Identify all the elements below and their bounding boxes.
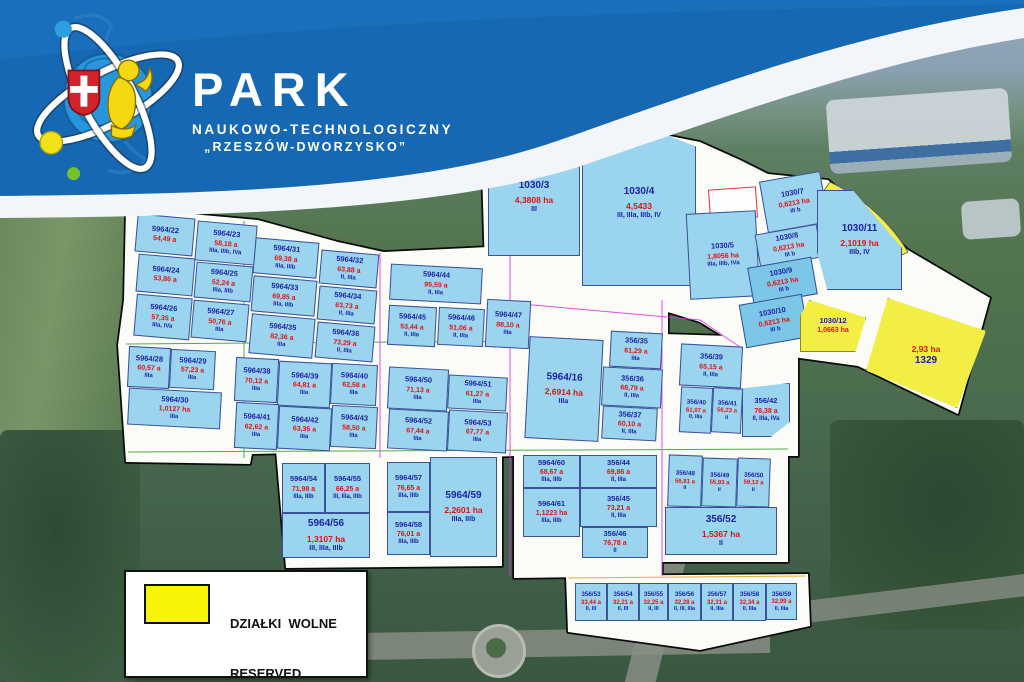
parcel-classes: IIIa <box>473 437 482 444</box>
parcel-5964-55: 5964/5566,25 aIII, IIIa, IIIb <box>325 463 370 513</box>
parcel-356-57: 356/5732,31 aII, IIIa <box>701 583 733 621</box>
parcel-5964-42: 5964/4263,35 aIIIa <box>277 406 332 452</box>
parcel-number: 5964/34 <box>334 291 362 302</box>
parcel-number: 5964/55 <box>334 475 361 484</box>
parcel-356-44: 356/4469,86 aII, IIIa <box>580 455 657 488</box>
parcel-356-54: 356/5432,21 aII, III <box>607 583 639 621</box>
park-subtitle-2: „RZESZÓW-DWORZYSKO” <box>204 140 453 154</box>
parcel-356-56: 356/5632,28 aII, III, IIIa <box>668 583 701 621</box>
parcel-area: 73,21 a <box>607 505 630 513</box>
parcel-number: 5964/59 <box>445 490 481 502</box>
parcel-number: 5964/24 <box>152 265 180 276</box>
parcel-number: 5964/56 <box>308 518 344 530</box>
parcel-classes: II, IIIa <box>338 310 354 318</box>
parcel-classes: III b <box>778 286 789 295</box>
parcel-5964-39: 5964/3964,81 aIIIa <box>277 361 332 409</box>
parcel-number: 356/49 <box>710 471 730 479</box>
logo-green-dot <box>67 167 80 180</box>
parcel-classes: II <box>719 540 723 548</box>
parcel-5964-32: 5964/3263,88 aII, IIIa <box>319 250 380 289</box>
parcel-5964-26: 5964/2657,35 aIIIa, IVa <box>133 294 192 341</box>
parcel-5964-29: 5964/2957,23 aIIIa <box>169 349 216 390</box>
parcel-classes: IIIa <box>144 373 153 380</box>
parcel-number: 5964/57 <box>395 474 422 483</box>
legend-free-en: RESERVED <box>230 666 337 682</box>
parcel-classes: II, III <box>586 606 596 612</box>
parcel-area: 76,01 a <box>397 531 420 539</box>
parcel-number: 356/59 <box>772 591 791 598</box>
parcel-356-59: 356/5932,99 aII, IIIa <box>766 583 797 620</box>
parcel-classes: IIIa, IIIb <box>452 516 476 524</box>
parcel-5964-57: 5964/5776,65 aIIIa, IIIb <box>387 462 430 512</box>
parcel-number: 356/40 <box>687 399 707 407</box>
parcel-area: 32,34 a <box>739 600 759 607</box>
parcel-5964-50: 5964/5071,13 aIIIa <box>387 366 449 411</box>
parcel-number: 5964/52 <box>405 417 433 427</box>
parcel-number: 5964/45 <box>399 313 427 323</box>
parcel-classes: IIIa, IIIb <box>212 287 233 296</box>
parcel-5964-60: 5964/6068,67 aIIIa, IIIb <box>523 455 580 488</box>
parcel-5964-31: 5964/3169,38 aIIIa, IIIb <box>253 237 320 278</box>
parcel-classes: II <box>725 415 728 421</box>
parcel-classes: III b <box>784 251 795 260</box>
parcel-classes: IIIa <box>170 414 179 421</box>
parcel-area: 2,1019 ha <box>840 239 878 249</box>
parcel-356-39: 356/3965,15 aII, IIIa <box>679 343 743 388</box>
parcel-5964-59: 5964/592,2601 haIIIa, IIIb <box>430 457 497 557</box>
parcel-classes: IIIa <box>349 433 358 440</box>
parcel-classes: IIIa <box>252 432 261 439</box>
parcel-classes: III b <box>770 326 781 335</box>
parcel-5964-43: 5964/4358,50 aIIIa <box>330 405 378 449</box>
parcel-number: 5964/35 <box>269 322 297 333</box>
logo-atom-icon <box>22 8 194 188</box>
parcel-5964-47: 5964/4788,10 aIIIa <box>485 299 531 349</box>
parcel-classes: II <box>752 487 755 493</box>
parcel-area: 68,67 a <box>540 469 563 477</box>
parcel-356-36: 356/3668,79 aII, IIIa <box>601 366 663 408</box>
parcel-classes: IIIa <box>503 330 512 337</box>
parcel-classes: II, IIIa <box>404 331 419 339</box>
parcel-classes: IIIa <box>277 342 286 350</box>
parcel-area: 53,86 a <box>153 275 177 285</box>
parcel-number: 5964/44 <box>423 271 451 281</box>
parcel-5964-35: 5964/3582,36 aIIIa <box>248 313 315 358</box>
parcel-number: 1030/12 <box>819 317 846 326</box>
parcel-classes: IIIa <box>413 395 422 402</box>
parcel-5964-54: 5964/5471,98 aIIIa, IIIb <box>282 463 325 513</box>
parcel-number: 356/58 <box>740 591 759 598</box>
parcel-number: 5964/30 <box>161 395 189 405</box>
parcel-classes: IIIa <box>631 356 640 363</box>
parcel-number: 356/55 <box>644 591 663 598</box>
parcel-356-46: 356/4676,78 aII <box>582 527 648 558</box>
parcel-number: 5964/32 <box>336 255 364 266</box>
parcel-number: 5964/47 <box>495 311 523 321</box>
parcel-classes: IIIa, IIIb <box>398 493 418 500</box>
parcel-5964-58: 5964/5876,01 aIIIa, IIIb <box>387 512 430 555</box>
parcel-classes: IIIa <box>252 386 261 393</box>
parcel-classes: II, IIIa <box>775 606 788 612</box>
parcel-number: 356/50 <box>744 471 764 479</box>
parcel-number: 356/42 <box>755 397 778 406</box>
parcel-356-45: 356/4573,21 aII, IIIa <box>580 488 657 527</box>
parcel-number: 5964/28 <box>136 354 164 364</box>
parcel-number: 356/54 <box>613 591 632 598</box>
parcel-classes: II, IIIa <box>710 606 723 612</box>
parcel-number: 1329 <box>915 355 937 367</box>
brand-text: PARK NAUKOWO-TECHNOLOGICZNY „RZESZÓW-DWO… <box>192 66 453 154</box>
parcel-classes: IIIa, IIIb <box>293 494 313 501</box>
parcel-classes: II, III, IIIa <box>674 606 695 612</box>
parcel-number: 5964/27 <box>207 307 235 318</box>
park-title: PARK <box>192 66 453 113</box>
parcel-classes: II, III <box>618 606 628 612</box>
parcel-classes: II, IIIa <box>743 606 756 612</box>
parcel-area: 2,93 ha <box>912 345 941 355</box>
parcel-classes: II, IIIa <box>340 274 356 282</box>
parcel-area: 32,25 a <box>643 600 663 607</box>
parcel-number: 5964/61 <box>538 500 565 509</box>
parcel-classes: IIIa <box>473 399 482 406</box>
parcel-classes: IIIa, IVa <box>152 322 173 331</box>
parcel-number: 356/46 <box>604 530 627 539</box>
parcel-area: 1,1223 ha <box>536 510 568 518</box>
parcel-classes: II <box>718 487 721 493</box>
parcel-number: 356/41 <box>718 399 738 407</box>
parcel-classes: IIIa, IIIb, IVa <box>209 247 242 257</box>
parcel-5964-45: 5964/4553,44 aII, IIIa <box>387 305 437 347</box>
parcel-area: 76,78 a <box>603 540 626 548</box>
parcel-number: 5964/42 <box>291 415 319 425</box>
parcel-classes: II, IIIa <box>336 347 352 355</box>
parcel-number: 5964/25 <box>210 268 238 279</box>
parcel-area: 2,2601 ha <box>444 506 482 516</box>
parcel-classes: IIIa <box>413 436 422 443</box>
parcel-number: 5964/58 <box>395 521 422 530</box>
parcel-classes: IIIa <box>558 398 568 407</box>
parcel-classes: II, IIIa <box>624 393 639 401</box>
parcel-5964-61: 5964/611,1223 haIIIa, IIIb <box>523 488 580 537</box>
parcel-number: 5964/33 <box>271 282 299 293</box>
parcel-classes: II <box>683 485 686 491</box>
parcel-356-50: 356/5059,12 aII <box>736 457 771 507</box>
parcel-number: 5964/53 <box>464 418 492 428</box>
parcel-number: 5964/39 <box>291 371 319 381</box>
parcel-number: 356/44 <box>607 459 630 468</box>
parcel-5964-40: 5964/4062,58 aIIIa <box>330 363 378 406</box>
parcel-area: 1,3107 ha <box>307 535 345 545</box>
legend-free-labels: DZIAŁKI WOLNE RESERVED RESERVIERTE <box>230 582 337 682</box>
parcel-classes: IIIa, IIIb <box>398 539 418 546</box>
parcel-classes: IIIa, IIIb <box>273 301 294 310</box>
parcel-356-58: 356/5832,34 aII, IIIa <box>733 583 766 621</box>
parcel-5964-38: 5964/3870,12 aIIIa <box>234 357 279 403</box>
parcel-356-40: 356/4061,07 aII, IIIa <box>679 386 713 434</box>
logo-yellow-dot <box>40 132 62 154</box>
parcel-number: 5964/50 <box>405 376 433 386</box>
parcel-number: 5964/16 <box>546 371 583 384</box>
parcel-number: 5964/31 <box>273 244 301 255</box>
parcel-5964-46: 5964/4651,06 aII, IIIa <box>437 307 485 347</box>
parcel-356-41: 356/4156,23 aII <box>711 387 743 434</box>
parcel-classes: II, IIIa, IVa <box>752 416 779 423</box>
parcel-area: 33,44 a <box>581 600 601 607</box>
logo-blue-dot <box>55 21 72 38</box>
parcel-number: 1030/5 <box>711 242 734 252</box>
parcel-number: 5964/40 <box>341 371 369 381</box>
parcel-classes: IIIa <box>349 390 358 397</box>
parcel-5964-51: 5964/5161,27 aIIIa <box>447 374 508 411</box>
parcel-classes: IIIa, IIIb, IVa <box>707 260 740 269</box>
legend: DZIAŁKI WOLNE RESERVED RESERVIERTE DZIAŁ… <box>124 570 368 678</box>
parcel-number: 5964/26 <box>150 303 178 314</box>
parcel-classes: II, III <box>648 606 658 612</box>
parcel-number: 356/35 <box>625 337 648 347</box>
park-logo <box>22 8 194 193</box>
parcel-number: 356/56 <box>675 591 694 598</box>
parcel-5964-53: 5964/5367,77 aIIIa <box>447 409 508 453</box>
parcel-area: 66,25 a <box>336 486 359 494</box>
parcel-number: 5964/29 <box>179 356 207 366</box>
parcel-area: 1,0663 ha <box>817 327 849 335</box>
parcel-classes: IIIa <box>188 375 197 382</box>
parcel-number: 356/37 <box>618 410 641 420</box>
parcel-356-48: 356/4856,81 aII <box>667 454 703 507</box>
parcel-classes: II <box>613 548 616 555</box>
parcel-number: 5964/43 <box>341 414 369 424</box>
parcel-area: 32,99 a <box>771 599 791 606</box>
parcel-5964-44: 5964/4495,59 aII, IIIa <box>389 264 483 305</box>
parcel-number: 356/39 <box>700 353 723 363</box>
parcel-classes: II, IIIa <box>621 429 636 437</box>
parcel-classes: IIIa, IIIb <box>275 263 296 272</box>
parcel-classes: IIIb, IV <box>849 249 870 257</box>
parcel-5964-33: 5964/3369,85 aIIIa, IIIb <box>251 275 318 316</box>
parcel-number: 5964/60 <box>538 459 565 468</box>
parcel-number: 5964/54 <box>290 475 317 484</box>
parcel-5964-56: 5964/561,3107 haIII, IIIa, IIIb <box>282 513 370 558</box>
parcel-5964-41: 5964/4162,62 aIIIa <box>234 402 279 450</box>
parcel-number: 356/57 <box>707 591 726 598</box>
parcel-classes: IIIa <box>300 390 309 397</box>
parcel-number: 5964/41 <box>243 413 271 423</box>
parcel-classes: IIIa, IIIb <box>541 477 561 484</box>
parcel-356-35: 356/3561,29 aIIIa <box>609 331 663 370</box>
parcel-number: 356/52 <box>706 514 737 526</box>
parcel-5964-36: 5964/3673,29 aII, IIIa <box>315 322 376 363</box>
parcel-5964-25: 5964/2552,24 aIIIa, IIIb <box>194 262 254 303</box>
parcel-5964-16: 5964/162,6914 haIIIa <box>524 336 603 442</box>
parcel-number: 356/53 <box>581 591 600 598</box>
parcel-classes: IIIa <box>300 434 309 441</box>
parcel-area: 76,38 a <box>754 408 777 416</box>
parcel-classes: IIIa, IIIb <box>541 518 561 525</box>
parcel-5964-27: 5964/2750,76 aIIIa <box>190 300 249 343</box>
legend-free-swatch <box>144 584 210 624</box>
parcel-classes: II, IIIa <box>611 477 626 484</box>
parcel-number: 356/45 <box>607 495 630 504</box>
parcel-5964-34: 5964/3463,73 aII, IIIa <box>317 286 378 325</box>
parcel-classes: II, IIIa <box>703 371 718 379</box>
parcel-classes: IIIa <box>215 327 224 335</box>
parcel-area: 76,65 a <box>397 485 420 493</box>
parcel-5964-30: 5964/301,0127 haIIIa <box>127 388 222 430</box>
parcel-classes: II, IIIa <box>611 513 626 520</box>
parcel-356-37: 356/3760,10 aII, IIIa <box>601 406 658 442</box>
parcel-356-49: 356/4955,93 aII <box>701 457 738 507</box>
parcel-number: 5964/38 <box>243 367 271 377</box>
legend-row-free: DZIAŁKI WOLNE RESERVED RESERVIERTE <box>144 582 366 682</box>
parcel-classes: II, IIIa <box>689 414 703 421</box>
parcel-classes: III, IIIa, IIIb <box>333 494 362 501</box>
parcel-5964-28: 5964/2860,57 aIIIa <box>127 346 171 389</box>
parcel-area: 69,86 a <box>607 469 630 477</box>
parcel-classes: III, IIIa, IIIb <box>309 545 342 553</box>
parcel-number: 5964/51 <box>464 380 492 390</box>
parcel-area: 32,31 a <box>707 600 727 607</box>
parcel-number: 356/36 <box>621 374 644 384</box>
parcel-5964-52: 5964/5267,44 aIIIa <box>387 408 449 451</box>
parcel-356-55: 356/5532,25 aII, III <box>639 583 668 621</box>
parcel-classes: II, IIIa <box>428 289 443 297</box>
parcel-classes: II, IIIa <box>453 332 468 340</box>
parcel-356-53: 356/5333,44 aII, III <box>575 583 607 621</box>
parcel-356-52: 356/521,5367 haII <box>665 507 777 555</box>
legend-free-pl: DZIAŁKI WOLNE <box>230 616 337 633</box>
parcel-number: 5964/46 <box>448 314 476 324</box>
parcel-area: 32,28 a <box>674 600 694 607</box>
parcel-number: 5964/36 <box>332 328 360 339</box>
logo-shield-icon <box>68 70 99 115</box>
parcel-number: 356/48 <box>675 470 695 478</box>
parcel-5964-24: 5964/2453,86 a <box>135 254 195 297</box>
parcel-area: 1,5367 ha <box>702 530 740 540</box>
parcel-area: 32,21 a <box>613 600 633 607</box>
parcel-area: 71,98 a <box>292 486 315 494</box>
park-subtitle-1: NAUKOWO-TECHNOLOGICZNY <box>192 122 453 137</box>
park-map-poster: { "header": { "title": "PARK", "subtitle… <box>0 0 1024 682</box>
